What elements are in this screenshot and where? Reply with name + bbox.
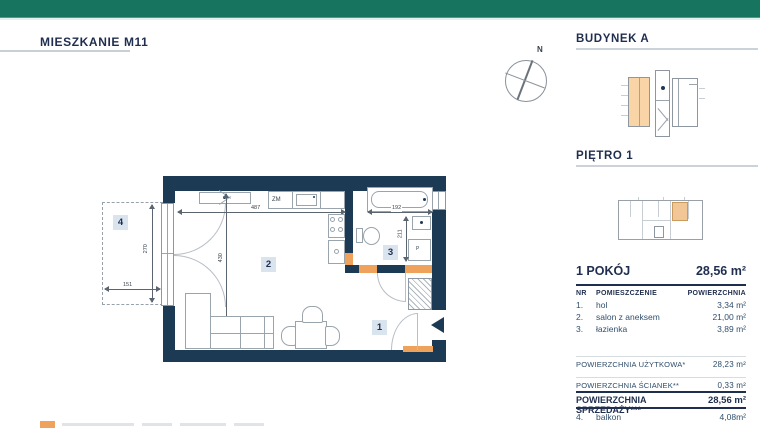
summary-title-row: 1 POKÓJ 28,56 m² [576, 264, 746, 278]
threshold-bathroom-door [359, 265, 377, 273]
total-label: POWIERZCHNIA UŻYTKOWA* [576, 360, 713, 369]
floor-partition [630, 201, 631, 217]
window-bathroom [432, 191, 446, 210]
summary-column-headers: NR POMIESZCZENIE POWIERZCHNIA [576, 290, 746, 297]
kitchen-cabinet-divider [320, 192, 321, 208]
legend-text-placeholder [234, 423, 264, 426]
sofa-chaise [185, 293, 211, 349]
dim-bathroom-height: 211 [399, 228, 405, 239]
summary-divider-dark [576, 407, 746, 409]
building-notch-line [689, 84, 698, 85]
balcony-door-frame-divider [162, 253, 173, 254]
total-label: POWIERZCHNIA ŚCIANEK** [576, 381, 717, 390]
dim-line-balcony-width [105, 289, 160, 290]
total-row-scianek: POWIERZCHNIA ŚCIANEK** 0,33 m² [576, 381, 746, 390]
dim-balcony-height: 270 [144, 243, 150, 254]
dim-bathroom-width: 192 [391, 206, 402, 212]
building-heading: BUDYNEK A [576, 33, 649, 45]
total-value: 28,56 m² [708, 395, 746, 406]
window-bathroom-mullion [438, 192, 439, 209]
room-nr: 1. [576, 300, 596, 310]
room-nr: 4. [576, 412, 596, 422]
page-title-underline [0, 50, 130, 52]
total-area-value: 28,56 m² [696, 264, 746, 278]
building-tick [621, 85, 628, 86]
dim-line-salon-width [178, 212, 345, 213]
floor-tick [663, 197, 664, 200]
room-row-hol: 1. hol 3,34 m² [576, 300, 746, 310]
building-locator-diagram [615, 64, 715, 144]
dim-balcony-width: 151 [122, 283, 133, 289]
floor-stair-core [654, 226, 664, 238]
total-row-uzytkowa: POWIERZCHNIA UŻYTKOWA* 28,23 m² [576, 360, 746, 369]
building-stairwell-divider [656, 100, 669, 101]
building-tick [621, 115, 628, 116]
room-label-hall: 1 [372, 320, 387, 335]
washing-machine-label: P [416, 247, 419, 252]
building-tick [621, 95, 628, 96]
floor-partition [670, 201, 671, 239]
room-name: balkon [596, 412, 720, 422]
floor-heading: PIĘTRO 1 [576, 150, 633, 162]
building-tick [699, 98, 705, 99]
room-label-bathroom: 3 [383, 245, 398, 260]
stove-burner [338, 217, 343, 222]
floor-partition [642, 220, 670, 221]
bathroom-sink-drain [420, 221, 423, 224]
wall-left-bottom [163, 306, 175, 350]
building-wing-divider [639, 78, 640, 126]
room-row-lazienka: 3. łazienka 3,89 m² [576, 324, 746, 334]
building-tick [621, 105, 628, 106]
room-area: 3,89 m² [717, 324, 746, 334]
building-tick [699, 88, 705, 89]
top-green-bar [0, 0, 760, 17]
dim-line-balcony-height [152, 205, 153, 302]
chair-left [281, 326, 296, 346]
summary-divider [576, 377, 746, 378]
dishwasher-label: ZM [272, 197, 281, 203]
bathtub-faucet [423, 198, 426, 201]
bathroom-door-swing [377, 273, 406, 302]
kitchen-cabinet-knob [334, 249, 339, 254]
wall-kitchen-bathroom-divider [345, 191, 353, 253]
top-bar-light-line [0, 18, 760, 20]
wall-right-lower-stub [432, 340, 446, 350]
threshold-closet-opening [405, 265, 432, 273]
rooms-count-title: 1 POKÓJ [576, 264, 696, 278]
room-area: 21,00 m² [712, 312, 746, 322]
building-second-wing [672, 78, 698, 127]
toilet-bowl [363, 227, 380, 245]
kitchen-cabinet-divider [292, 192, 293, 208]
floor-partition [658, 201, 659, 217]
built-in-closet [408, 278, 432, 310]
floor-highlighted-unit [672, 202, 688, 221]
floor-heading-rule [576, 165, 758, 167]
apartment-card-page: MIESZKANIE M11 BUDYNEK A PIĘTRO 1 [0, 0, 760, 428]
summary-divider-dark [576, 284, 746, 286]
chair-top [302, 306, 323, 323]
room-nr: 2. [576, 312, 596, 322]
floor-partition [688, 201, 689, 219]
wall-left-top-stub [163, 191, 175, 203]
dim-salon-height: 430 [219, 252, 225, 263]
room-area: 3,34 m² [717, 300, 746, 310]
stove-burner [338, 227, 343, 232]
entrance-arrow-icon [431, 317, 444, 333]
room-label-balcony: 4 [113, 215, 128, 230]
legend-text-placeholder [180, 423, 226, 426]
dim-line-bathroom-width [368, 212, 432, 213]
kitchen-faucet [313, 196, 315, 198]
room-name: hol [596, 300, 717, 310]
building-entrance-dot [661, 86, 665, 90]
wall-right-upper [432, 210, 446, 310]
col-header-nr: NR [576, 290, 596, 297]
page-title: MIESZKANIE M11 [40, 35, 148, 49]
legend-orange-swatch [40, 421, 55, 428]
floor-tick [684, 197, 685, 200]
total-value: 0,33 m² [717, 381, 746, 390]
sofa-back-line [211, 333, 273, 334]
dining-table [295, 321, 327, 349]
floor-tick [638, 197, 639, 200]
col-header-room: POMIESZCZENIE [596, 290, 688, 297]
legend-text-placeholder [142, 423, 172, 426]
building-second-wing-divider [678, 79, 679, 126]
toilet-tank [356, 228, 363, 243]
dim-salon-width: 487 [250, 206, 261, 212]
summary-divider [576, 356, 746, 357]
room-name: salon z aneksem [596, 312, 712, 322]
room-label-salon: 2 [261, 257, 276, 272]
summary-divider-dark [576, 391, 746, 393]
balcony-door-frame-line [167, 204, 168, 305]
entrance-door-swing [391, 313, 418, 350]
stove-burner [330, 217, 335, 222]
col-header-area: POWIERZCHNIA [688, 290, 746, 297]
washing-machine [408, 239, 431, 261]
stove-burner [330, 227, 335, 232]
room-nr: 3. [576, 324, 596, 334]
building-stairwell [655, 70, 670, 137]
chair-right [325, 326, 340, 346]
room-name: łazienka [596, 324, 717, 334]
floor-locator-diagram [618, 200, 703, 240]
balcony-row: 4. balkon 4,08m² [576, 412, 746, 422]
building-heading-rule [576, 48, 758, 50]
room-area: 4,08m² [720, 412, 746, 422]
room-row-salon: 2. salon z aneksem 21,00 m² [576, 312, 746, 322]
dim-line-bathroom-height [406, 217, 407, 261]
total-value: 28,23 m² [713, 360, 746, 369]
compass-north-label: N [537, 45, 543, 54]
legend-text-placeholder [62, 423, 134, 426]
